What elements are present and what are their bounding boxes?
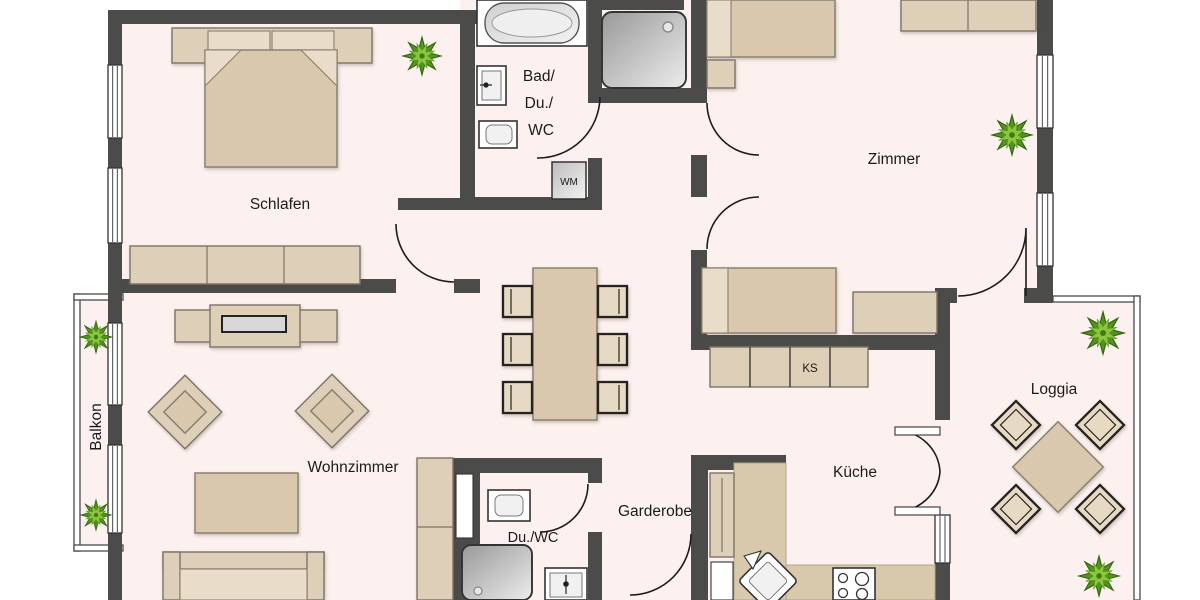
window: [108, 65, 122, 138]
plant-icon: [1079, 556, 1119, 596]
dining-chair: [598, 382, 627, 413]
window: [935, 515, 950, 563]
room-label-bad-line3: WC: [528, 122, 554, 139]
wall-segment: [588, 532, 602, 600]
dining-chair: [598, 334, 627, 365]
plant-icon: [1082, 312, 1124, 354]
window: [108, 445, 122, 533]
room-label-kueche: Küche: [833, 464, 877, 481]
plant-icon: [403, 37, 441, 75]
plant-icon: [992, 115, 1032, 155]
window: [108, 323, 122, 405]
coffee-table: [195, 473, 298, 533]
counter-ks-row: KS: [710, 347, 868, 387]
room-label-bad-line1: Bad/: [523, 68, 556, 85]
wall-segment: [691, 155, 707, 197]
room-label-schlafen: Schlafen: [250, 196, 310, 213]
wall-segment: [935, 563, 950, 600]
wall-segment: [460, 10, 475, 210]
room-label-wohnzimmer: Wohnzimmer: [307, 459, 398, 476]
tall-cabinet: [417, 458, 453, 600]
wall-segment: [691, 0, 707, 103]
window: [1037, 193, 1053, 266]
installation-shaft: [456, 474, 473, 538]
floor-plan-page: WM: [0, 0, 1200, 600]
washing-machine-label: WM: [560, 177, 578, 188]
stove: [833, 568, 875, 600]
wardrobe: [901, 0, 1036, 31]
dining-chair: [503, 286, 532, 317]
balkon-railing-left: [74, 294, 80, 551]
room-label-balkon: Balkon: [88, 403, 105, 450]
tv: [222, 316, 286, 332]
window: [108, 168, 122, 243]
wall-segment: [588, 88, 693, 103]
room-label-bad-line2: Du./: [525, 95, 554, 112]
dining-set: [503, 268, 627, 420]
bathtub: [477, 0, 587, 46]
sideboard: [853, 292, 937, 333]
wall-segment: [108, 10, 480, 24]
wall-segment: [588, 0, 602, 100]
washbasin: [545, 568, 587, 600]
shower: [462, 545, 532, 600]
plant-icon: [81, 500, 111, 530]
floor-plan-image: WM: [0, 0, 1200, 600]
refrigerator-label: KS: [802, 363, 818, 375]
wall-segment: [598, 0, 684, 10]
door-leaf: [895, 427, 940, 435]
wall-segment: [691, 455, 708, 600]
wall-segment: [588, 473, 602, 483]
plant-icon: [80, 321, 112, 353]
tall-kitchen-cabinet: [710, 473, 734, 557]
nightstand: [707, 60, 735, 88]
wall-segment: [588, 158, 602, 210]
room-label-bad: Bad/ Du./ WC: [523, 68, 559, 139]
wall-segment: [398, 198, 462, 210]
sofa: [163, 552, 324, 600]
window: [1037, 55, 1053, 128]
loggia-furniture: [992, 401, 1124, 533]
washbasin: [477, 66, 506, 105]
room-label-zimmer: Zimmer: [868, 151, 921, 168]
shower: [602, 12, 686, 88]
door-leaf: [895, 507, 940, 515]
dining-chair: [598, 286, 627, 317]
room-label-garderobe: Garderobe: [618, 503, 692, 520]
schlafen-dresser: [130, 246, 360, 284]
bed-mattress: [205, 50, 337, 167]
toilet: [479, 121, 517, 148]
loggia-railing-top: [1053, 296, 1140, 302]
dining-table: [533, 268, 597, 420]
room-label-duwc: Du./WC: [508, 530, 559, 546]
dining-chair: [503, 382, 532, 413]
zimmer-daybed: [702, 268, 836, 333]
wall-segment: [454, 279, 480, 293]
washing-machine: WM: [552, 162, 586, 199]
tv-sideboard: [175, 305, 337, 347]
dishwasher: [711, 562, 733, 600]
dining-chair: [503, 334, 532, 365]
loggia-railing-right: [1134, 296, 1140, 600]
room-label-loggia: Loggia: [1031, 381, 1078, 398]
zimmer-bed-top: [707, 0, 835, 57]
toilet: [488, 490, 530, 521]
